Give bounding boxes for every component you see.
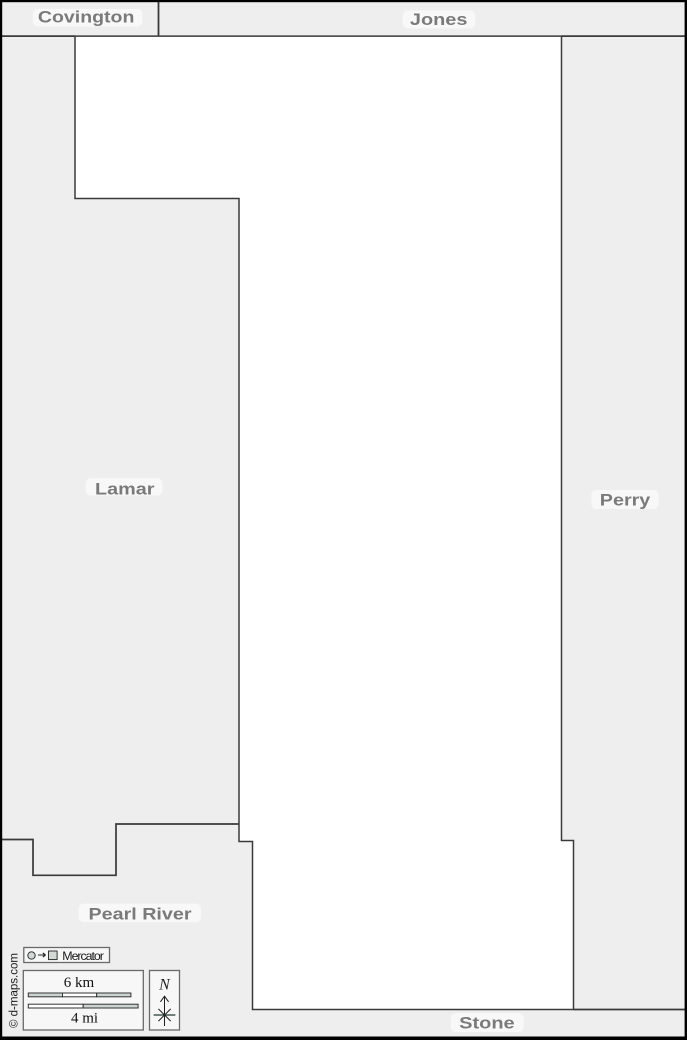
svg-text:4 mi: 4 mi [71, 1010, 98, 1026]
svg-text:Covington: Covington [38, 8, 134, 27]
svg-text:© d-maps.com: © d-maps.com [8, 953, 20, 1028]
svg-text:N: N [158, 977, 171, 994]
svg-text:Lamar: Lamar [95, 479, 155, 498]
svg-text:Pearl River: Pearl River [89, 904, 193, 923]
svg-text:Perry: Perry [600, 490, 651, 509]
svg-text:Stone: Stone [459, 1013, 515, 1032]
svg-text:Jones: Jones [410, 10, 468, 29]
svg-text:6 km: 6 km [64, 975, 95, 991]
svg-text:Mercator: Mercator [62, 949, 103, 963]
